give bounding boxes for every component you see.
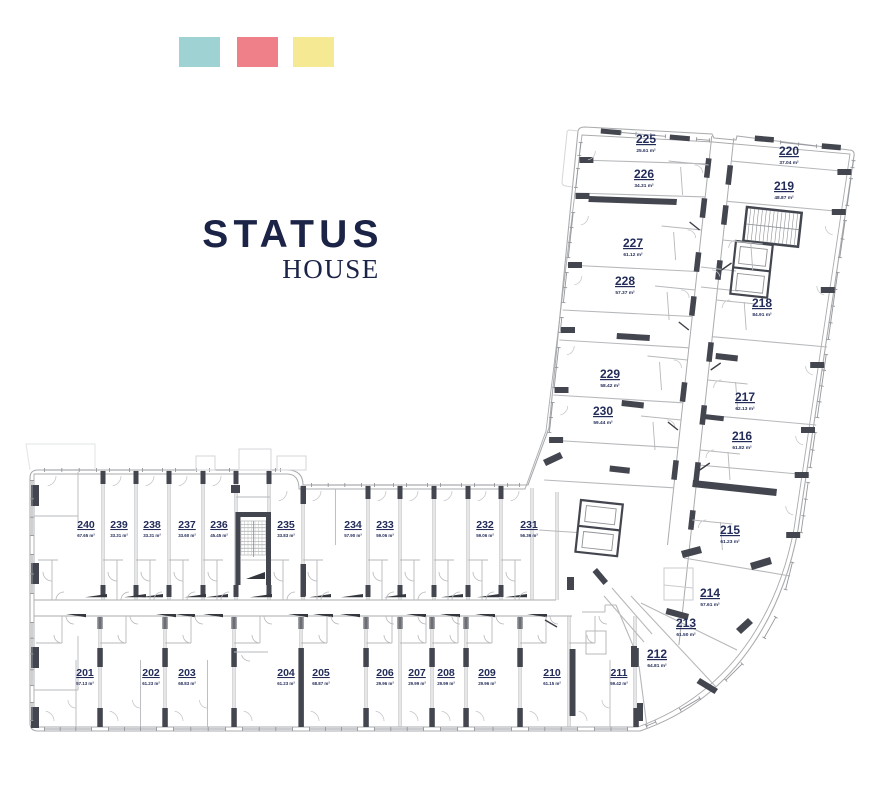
svg-text:230: 230 xyxy=(593,404,613,418)
svg-text:61.23 m²: 61.23 m² xyxy=(720,539,740,545)
svg-text:240: 240 xyxy=(77,519,95,531)
svg-text:204: 204 xyxy=(277,667,295,679)
svg-text:211: 211 xyxy=(611,667,628,679)
svg-text:61.23 m²: 61.23 m² xyxy=(277,681,295,686)
svg-text:HOUSE: HOUSE xyxy=(282,254,380,284)
svg-text:234: 234 xyxy=(344,519,362,531)
svg-text:212: 212 xyxy=(647,647,667,661)
svg-text:233: 233 xyxy=(376,519,394,531)
svg-text:37.04 m²: 37.04 m² xyxy=(779,160,799,166)
svg-text:203: 203 xyxy=(178,667,196,679)
svg-text:29.99 m²: 29.99 m² xyxy=(437,681,455,686)
svg-text:61.15 m²: 61.15 m² xyxy=(543,681,561,686)
svg-text:219: 219 xyxy=(774,179,794,193)
svg-text:STATUS: STATUS xyxy=(202,213,383,256)
svg-text:59.06 m²: 59.06 m² xyxy=(376,533,394,538)
svg-text:67.65 m²: 67.65 m² xyxy=(77,533,95,538)
svg-text:68.83 m²: 68.83 m² xyxy=(178,681,196,686)
svg-text:220: 220 xyxy=(779,144,799,158)
svg-text:59.06 m²: 59.06 m² xyxy=(476,533,494,538)
svg-text:235: 235 xyxy=(277,519,295,531)
svg-text:58.42 m²: 58.42 m² xyxy=(600,383,620,389)
svg-text:56.36 m²: 56.36 m² xyxy=(520,533,538,538)
svg-text:226: 226 xyxy=(634,167,654,181)
svg-text:237: 237 xyxy=(178,519,196,531)
svg-text:238: 238 xyxy=(143,519,161,531)
svg-text:210: 210 xyxy=(543,667,561,679)
svg-text:57.37 m²: 57.37 m² xyxy=(615,290,635,296)
svg-text:209: 209 xyxy=(478,667,496,679)
svg-text:29.96 m²: 29.96 m² xyxy=(376,681,394,686)
svg-text:213: 213 xyxy=(676,616,696,630)
svg-text:225: 225 xyxy=(636,132,656,146)
svg-text:215: 215 xyxy=(720,523,740,537)
svg-text:218: 218 xyxy=(752,296,772,310)
svg-text:207: 207 xyxy=(408,667,426,679)
svg-text:208: 208 xyxy=(437,667,455,679)
svg-text:61.12 m²: 61.12 m² xyxy=(623,252,643,258)
svg-text:61.82 m²: 61.82 m² xyxy=(732,445,752,451)
svg-text:214: 214 xyxy=(700,586,720,600)
svg-text:232: 232 xyxy=(476,519,494,531)
svg-text:57.90 m²: 57.90 m² xyxy=(344,533,362,538)
svg-text:29.99 m²: 29.99 m² xyxy=(408,681,426,686)
svg-text:228: 228 xyxy=(615,274,635,288)
svg-text:64.81 m²: 64.81 m² xyxy=(647,663,667,669)
svg-text:33.60 m²: 33.60 m² xyxy=(178,533,196,538)
svg-text:206: 206 xyxy=(376,667,394,679)
svg-text:236: 236 xyxy=(210,519,228,531)
svg-text:217: 217 xyxy=(735,390,755,404)
svg-text:62.13 m²: 62.13 m² xyxy=(735,406,755,412)
svg-text:57.61 m²: 57.61 m² xyxy=(700,602,720,608)
svg-text:61.50 m²: 61.50 m² xyxy=(676,632,696,638)
svg-text:84.91 m²: 84.91 m² xyxy=(752,312,772,318)
svg-text:205: 205 xyxy=(312,667,330,679)
svg-text:239: 239 xyxy=(110,519,128,531)
svg-text:45.45 m²: 45.45 m² xyxy=(210,533,228,538)
svg-text:229: 229 xyxy=(600,367,620,381)
svg-text:231: 231 xyxy=(520,519,538,531)
svg-text:68.87 m²: 68.87 m² xyxy=(312,681,330,686)
svg-text:34.31 m²: 34.31 m² xyxy=(634,183,654,189)
svg-text:202: 202 xyxy=(142,667,160,679)
svg-text:25.61 m²: 25.61 m² xyxy=(636,148,656,154)
svg-text:59.44 m²: 59.44 m² xyxy=(593,420,613,426)
svg-text:57.13 m²: 57.13 m² xyxy=(76,681,94,686)
svg-text:48.87 m²: 48.87 m² xyxy=(774,195,794,201)
svg-text:33.31 m²: 33.31 m² xyxy=(110,533,128,538)
svg-text:201: 201 xyxy=(76,667,94,679)
svg-text:33.83 m²: 33.83 m² xyxy=(277,533,295,538)
svg-text:216: 216 xyxy=(732,429,752,443)
svg-text:59.42 m²: 59.42 m² xyxy=(610,681,628,686)
svg-text:29.96 m²: 29.96 m² xyxy=(478,681,496,686)
svg-text:33.31 m²: 33.31 m² xyxy=(143,533,161,538)
svg-text:61.23 m²: 61.23 m² xyxy=(142,681,160,686)
svg-text:227: 227 xyxy=(623,236,643,250)
